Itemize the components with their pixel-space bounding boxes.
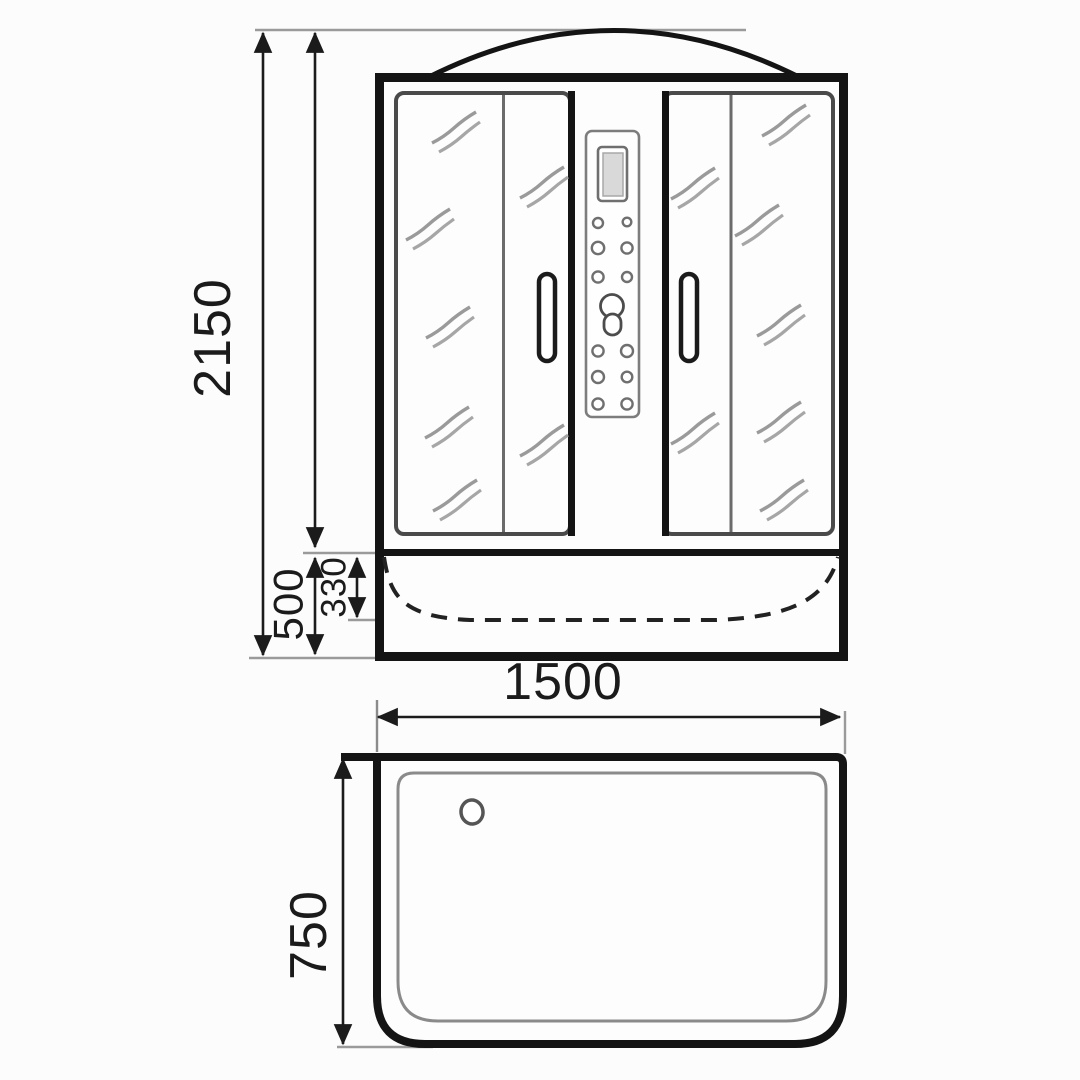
door-handle-right xyxy=(681,274,697,361)
dimension-label-total-height: 2150 xyxy=(184,278,242,398)
display-screen-glass xyxy=(603,153,623,196)
technical-drawing-canvas: 2150 500 330 xyxy=(0,0,1080,1080)
dimension-label-width: 1500 xyxy=(503,653,623,711)
panel-button xyxy=(592,345,603,356)
plan-view: 1500 750 xyxy=(280,653,845,1047)
dimension-label-depth: 750 xyxy=(280,890,338,980)
dimension-label-tray-inner-depth: 330 xyxy=(314,556,353,617)
shower-knob-stem xyxy=(604,314,621,335)
roof-arc xyxy=(429,31,799,78)
panel-button xyxy=(592,371,604,383)
panel-button xyxy=(621,242,632,253)
panel-button xyxy=(621,398,632,409)
panel-button xyxy=(621,345,633,357)
tray-outer-edge xyxy=(341,757,843,1044)
panel-button xyxy=(592,398,603,409)
panel-button xyxy=(592,242,604,254)
dimension-label-tray-height: 500 xyxy=(265,567,312,640)
panel-button xyxy=(593,218,603,228)
panel-button xyxy=(622,272,632,282)
panel-button xyxy=(592,271,603,282)
panel-button xyxy=(623,218,632,227)
shower-tray-plan xyxy=(341,757,843,1044)
control-panel xyxy=(586,131,639,417)
panel-button xyxy=(622,372,633,383)
front-elevation-view: 2150 500 330 xyxy=(184,30,848,658)
door-handle-left xyxy=(539,274,555,361)
drain-hole xyxy=(459,799,484,826)
technical-drawing-page: 2150 500 330 xyxy=(0,0,1080,1080)
shower-cabin-front xyxy=(375,31,848,657)
